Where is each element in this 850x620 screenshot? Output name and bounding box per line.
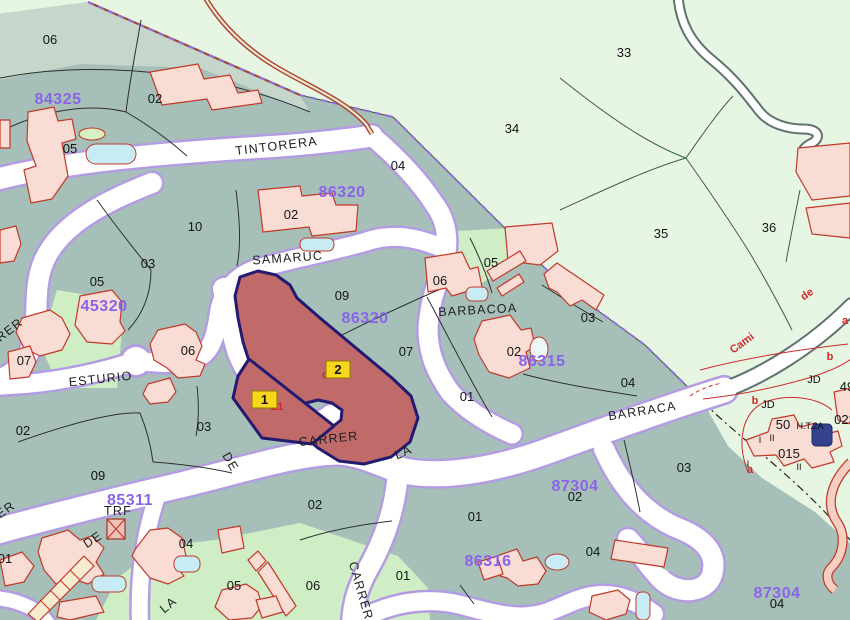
map-label: 06 — [181, 343, 195, 358]
map-label: JD — [807, 374, 821, 386]
map-label: 87304 — [754, 585, 801, 602]
map-label: 36 — [762, 220, 776, 235]
map-label: 01 — [460, 389, 474, 404]
map-label: 01 — [396, 568, 410, 583]
map-label: 05 — [63, 141, 77, 156]
map-label: 04 — [621, 375, 635, 390]
parcel-number-box-label: 2 — [334, 362, 341, 377]
map-label: a — [842, 315, 849, 327]
map-label: I — [759, 435, 762, 445]
map-label: I — [747, 459, 750, 469]
map-label: 05 — [227, 578, 241, 593]
map-label: 03 — [677, 460, 691, 475]
map-label: 07 — [399, 344, 413, 359]
map-label: 86316 — [465, 553, 512, 570]
map-label: b — [752, 395, 759, 407]
map-label: 04 — [179, 536, 193, 551]
map-label: 86315 — [519, 353, 566, 370]
map-label: 05 — [484, 255, 498, 270]
cadastral-map-viewport[interactable]: 0602050402103334353603050905060302070607… — [0, 0, 850, 620]
map-label: 02 — [284, 207, 298, 222]
map-label: 09 — [335, 288, 349, 303]
parcel-number-box-label: 1 — [261, 392, 268, 407]
map-label: 01 — [0, 551, 12, 566]
map-label: 023 — [834, 412, 850, 427]
map-label: 09 — [91, 468, 105, 483]
map-label: 02 — [148, 91, 162, 106]
map-label: 84325 — [35, 91, 82, 108]
map-label: 49 — [840, 379, 850, 394]
map-label: II — [769, 433, 774, 443]
map-label: b — [827, 351, 834, 363]
map-label: TRF — [104, 504, 132, 518]
map-label: 03 — [141, 256, 155, 271]
map-label: 10 — [188, 219, 202, 234]
map-label: 02 — [308, 497, 322, 512]
map-label: 02 — [16, 423, 30, 438]
map-label: 50 — [776, 417, 790, 432]
map-label: 06 — [306, 578, 320, 593]
map-label: II — [796, 462, 801, 472]
map-canvas[interactable]: 0602050402103334353603050905060302070607… — [0, 0, 850, 620]
map-label: 015 — [778, 446, 800, 461]
map-label: 04 — [586, 544, 600, 559]
map-label: 35 — [654, 226, 668, 241]
map-label: 03 — [197, 419, 211, 434]
map-label: 33 — [617, 45, 631, 60]
map-label: 04 — [391, 158, 405, 173]
map-label: 05 — [90, 274, 104, 289]
map-label: 03 — [581, 310, 595, 325]
map-label: H.T.2A — [796, 421, 823, 431]
map-label: 86320 — [342, 310, 389, 327]
map-label: 06 — [433, 273, 447, 288]
map-label: 87304 — [552, 478, 599, 495]
map-label: 06 — [43, 32, 57, 47]
map-label: 34 — [505, 121, 519, 136]
map-label: JD — [761, 399, 775, 411]
map-label: 07 — [17, 353, 31, 368]
map-label: 45320 — [81, 298, 128, 315]
map-label: 01 — [468, 509, 482, 524]
map-label: 86320 — [319, 184, 366, 201]
